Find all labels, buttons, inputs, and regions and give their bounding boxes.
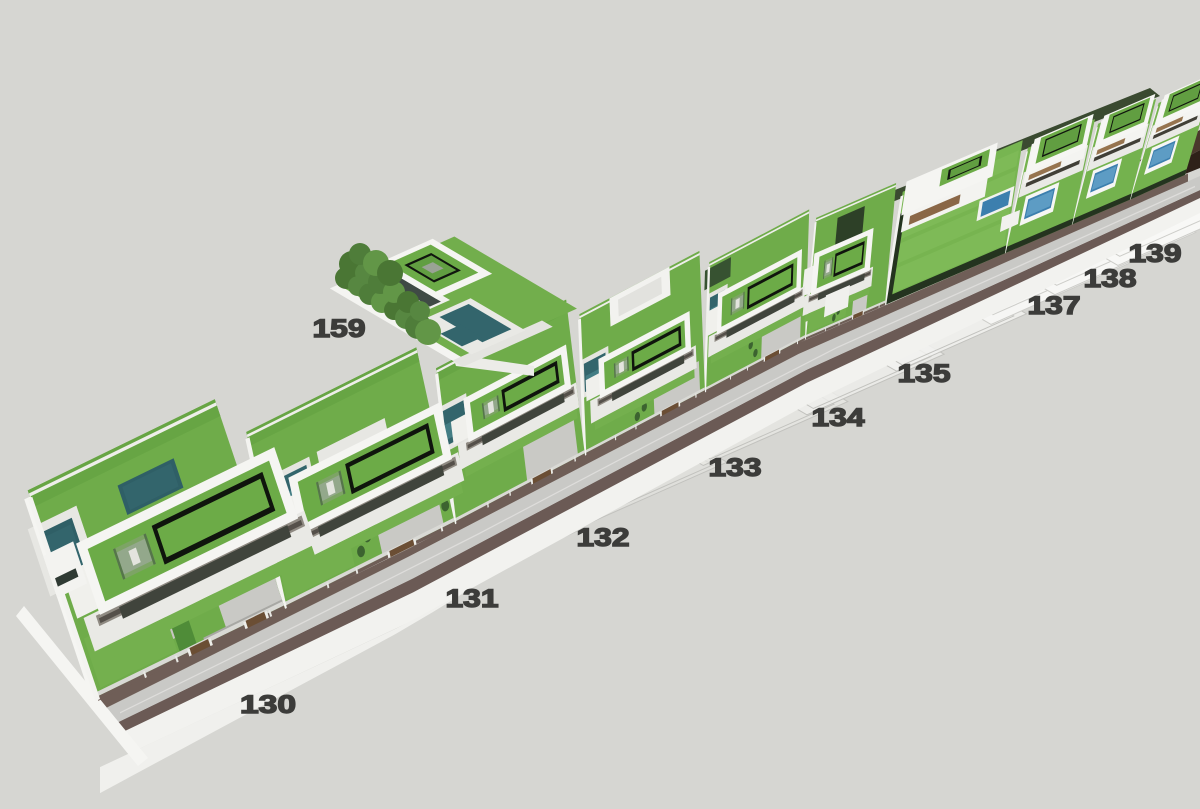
svg-text:159: 159 bbox=[313, 315, 366, 343]
svg-text:132: 132 bbox=[577, 524, 630, 552]
svg-text:137: 137 bbox=[1028, 292, 1081, 320]
svg-text:139: 139 bbox=[1129, 240, 1182, 268]
svg-text:130: 130 bbox=[240, 691, 296, 719]
svg-text:133: 133 bbox=[709, 454, 762, 482]
svg-text:138: 138 bbox=[1084, 265, 1137, 293]
svg-text:134: 134 bbox=[812, 404, 865, 432]
svg-text:135: 135 bbox=[898, 360, 951, 388]
svg-text:131: 131 bbox=[446, 585, 499, 613]
